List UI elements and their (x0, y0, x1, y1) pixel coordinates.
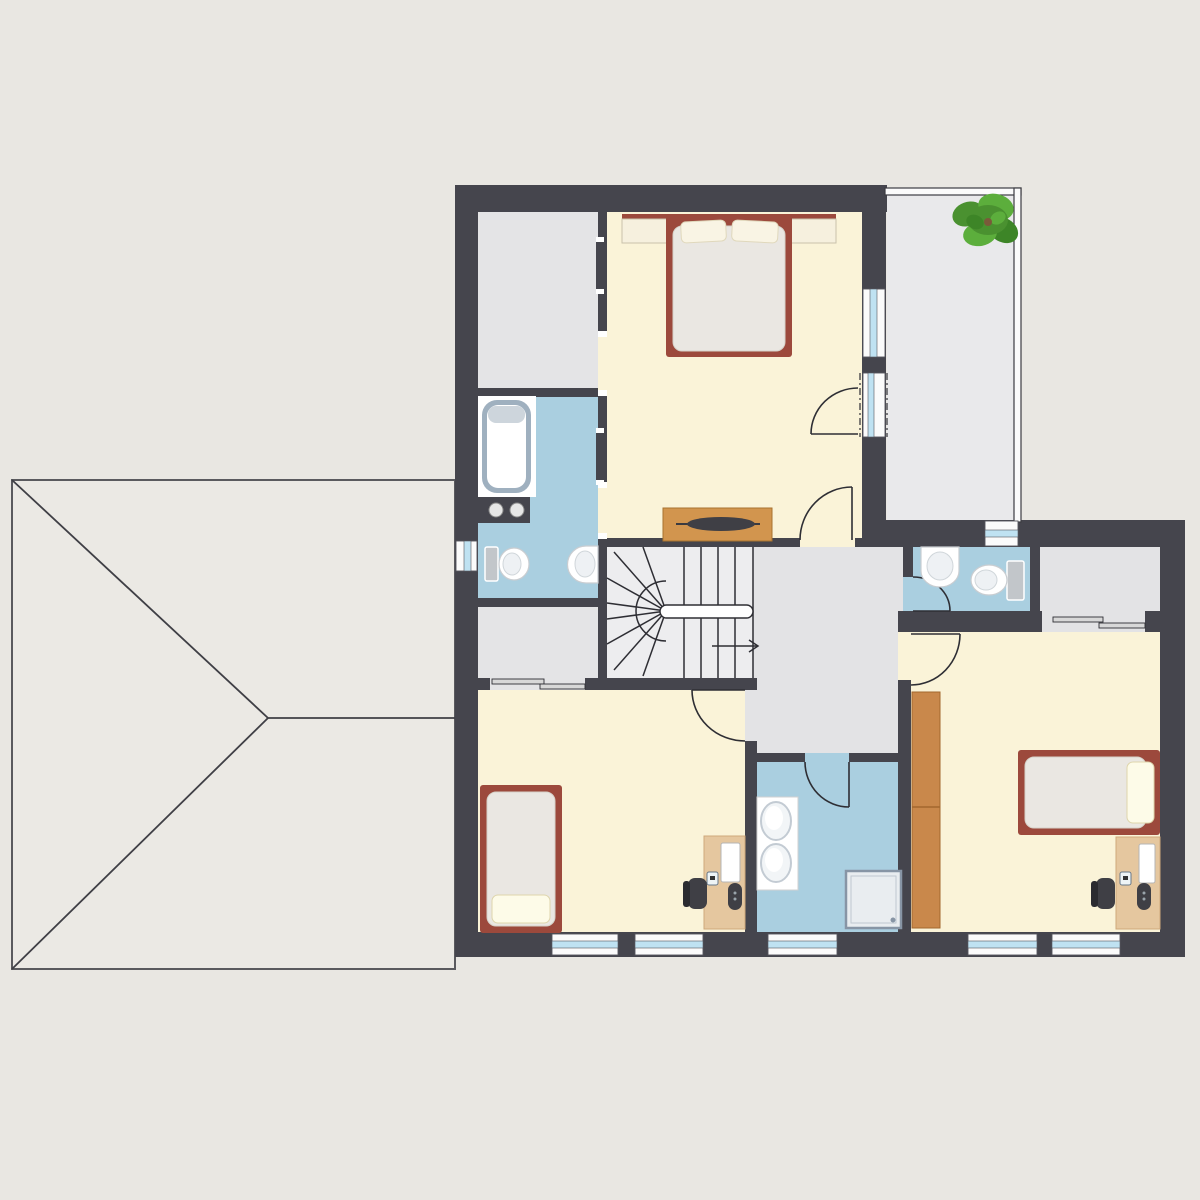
opening-bedleft-door (745, 690, 757, 741)
wall-bath2-top-a (745, 753, 805, 762)
wall-bath-closet2 (478, 598, 607, 607)
wall-tip (598, 331, 607, 337)
hallway-floor (753, 540, 903, 755)
double-bed-mattress (673, 226, 785, 351)
opening-master-door (800, 538, 855, 547)
nightstand-right (791, 219, 836, 243)
wall-below-wc (898, 611, 1042, 632)
toilet-tank (1007, 561, 1024, 600)
roof-outline (12, 480, 455, 969)
desk-speaker (1137, 883, 1151, 910)
wall-wc-left (903, 545, 913, 577)
pillow-right (731, 220, 778, 243)
speaker-dot (1143, 898, 1146, 901)
opening-master-closet (598, 337, 607, 390)
wall-master-right (862, 185, 886, 545)
wall-tip (598, 533, 607, 539)
opening-bath2-door (805, 753, 849, 762)
window-wc-balcony (985, 521, 1018, 546)
window-bottom-3 (768, 934, 837, 955)
phone-screen (1123, 876, 1128, 880)
window-bottom-4 (968, 934, 1037, 955)
office-chair-back (683, 881, 690, 907)
pillow (1127, 762, 1154, 823)
shower-drain (891, 918, 896, 923)
washer-knob (489, 503, 503, 517)
opening-bedright-door (898, 632, 911, 680)
floor-plan-svg (0, 0, 1200, 1200)
wardrobe (912, 692, 940, 928)
wall-bedleft-hall-a (745, 683, 757, 690)
plant-trunk (984, 218, 992, 226)
phone-screen (710, 876, 715, 880)
office-chair-seat (688, 878, 707, 909)
office-chair-back (1091, 881, 1098, 907)
tv-on-sideboard (687, 517, 755, 531)
bathtub-head (488, 406, 525, 423)
vanity-basin-highlight (765, 806, 783, 830)
toilet-bowl-inner (975, 570, 997, 590)
wall-tip (598, 390, 607, 396)
speaker-dot (734, 892, 737, 895)
wall-outer-right (1160, 520, 1185, 957)
wall-sink-basin (575, 551, 595, 577)
vanity-basin-highlight (765, 848, 783, 872)
wall-stair-top-b (855, 538, 905, 547)
toilet-bowl-inner (503, 553, 521, 575)
window-bottom-5 (1052, 934, 1120, 955)
wall-wc-right (1030, 545, 1040, 615)
pillow-left (681, 220, 727, 243)
office-chair-seat (1096, 878, 1115, 909)
balcony-french-door (860, 373, 887, 437)
opening-master-bath (598, 488, 607, 533)
monitor (1139, 844, 1155, 883)
floor-plan-canvas (0, 0, 1200, 1200)
wall-bedleft-top-a (455, 678, 490, 690)
walk-in-closet-floor (478, 212, 600, 390)
wall-closet-bath (478, 388, 607, 397)
wall-bedleft-top-b (585, 678, 757, 690)
ensuite-pocket-door (596, 428, 604, 485)
toilet-tank (485, 547, 498, 581)
wall-stair-left (598, 533, 607, 685)
window-bottom-2 (635, 934, 703, 955)
railing-top (885, 188, 1021, 195)
garage-roof (12, 480, 455, 969)
nightstand-left (622, 219, 667, 243)
storage-room-floor (1036, 545, 1162, 620)
closet-lower-left-floor (478, 602, 602, 682)
desk-speaker (728, 883, 742, 910)
window-bottom-1 (552, 934, 618, 955)
wall-below-storage (1145, 611, 1160, 632)
speaker-dot (734, 898, 737, 901)
wall-bedleft-hall-b (745, 741, 757, 935)
opening-wc-door (903, 577, 913, 611)
window-master-balcony (863, 289, 885, 357)
washer-knob (510, 503, 524, 517)
speaker-dot (1143, 892, 1146, 895)
wall-outer-top (455, 185, 887, 212)
monitor (721, 843, 740, 882)
pedestal-sink-basin (927, 552, 953, 580)
pillow (492, 895, 550, 923)
window-left-bathroom (456, 541, 477, 571)
stair-handrail (660, 605, 753, 618)
master-closet-pocket-door (596, 237, 604, 294)
wall-upper-right (885, 520, 1185, 547)
